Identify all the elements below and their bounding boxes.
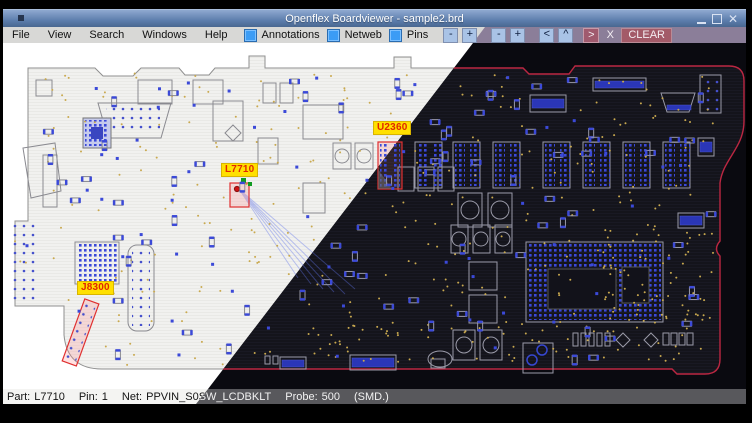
- status-pin: Pin:1: [79, 391, 108, 403]
- status-bar: Part:L7710 Pin:1 Net:PPVIN_S0SW_LCDBKLT …: [3, 389, 746, 404]
- menu-windows[interactable]: Windows: [133, 28, 196, 42]
- toggle-pins[interactable]: Pins: [389, 29, 428, 42]
- checkbox-pins-icon[interactable]: [389, 29, 402, 42]
- zoom-out-button-2[interactable]: -: [491, 28, 506, 43]
- close-icon[interactable]: ✕: [728, 14, 738, 24]
- ref-label-j8300[interactable]: J8300: [77, 281, 114, 295]
- toggle-pins-label: Pins: [407, 29, 428, 41]
- board-canvas[interactable]: [3, 43, 746, 389]
- prev-button[interactable]: <: [539, 28, 554, 43]
- next-button[interactable]: >: [583, 28, 599, 43]
- menu-search[interactable]: Search: [80, 28, 133, 42]
- menu-file[interactable]: File: [3, 28, 39, 42]
- toggle-netweb-label: Netweb: [345, 29, 382, 41]
- maximize-icon[interactable]: [712, 14, 722, 24]
- checkbox-netweb-icon[interactable]: [327, 29, 340, 42]
- zoom-in-button[interactable]: +: [462, 28, 477, 43]
- zoom-in-button-2[interactable]: +: [510, 28, 525, 43]
- board-viewport[interactable]: U2360 L7710 J8300: [3, 43, 746, 389]
- x-button[interactable]: X: [604, 29, 616, 42]
- up-button[interactable]: ^: [558, 28, 573, 43]
- clear-button[interactable]: CLEAR: [621, 28, 672, 43]
- menu-help[interactable]: Help: [196, 28, 237, 42]
- menu-view[interactable]: View: [39, 28, 81, 42]
- checkbox-annotations-icon[interactable]: [244, 29, 257, 42]
- minimize-icon[interactable]: [697, 14, 706, 24]
- menu-bar: File View Search Windows Help Annotation…: [3, 27, 746, 43]
- zoom-out-button[interactable]: -: [443, 28, 458, 43]
- toggle-annotations-label: Annotations: [262, 29, 320, 41]
- ref-label-u2360[interactable]: U2360: [373, 121, 411, 135]
- status-part: Part:L7710: [7, 391, 65, 403]
- toggle-netweb[interactable]: Netweb: [327, 29, 382, 42]
- ref-label-l7710[interactable]: L7710: [221, 163, 258, 177]
- toggle-annotations[interactable]: Annotations: [244, 29, 320, 42]
- app-window: Openflex Boardviewer - sample2.brd ✕ Fil…: [0, 0, 752, 423]
- window-title: Openflex Boardviewer - sample2.brd: [3, 10, 746, 28]
- window-controls: ✕: [697, 10, 738, 28]
- title-bar: Openflex Boardviewer - sample2.brd ✕: [3, 9, 746, 28]
